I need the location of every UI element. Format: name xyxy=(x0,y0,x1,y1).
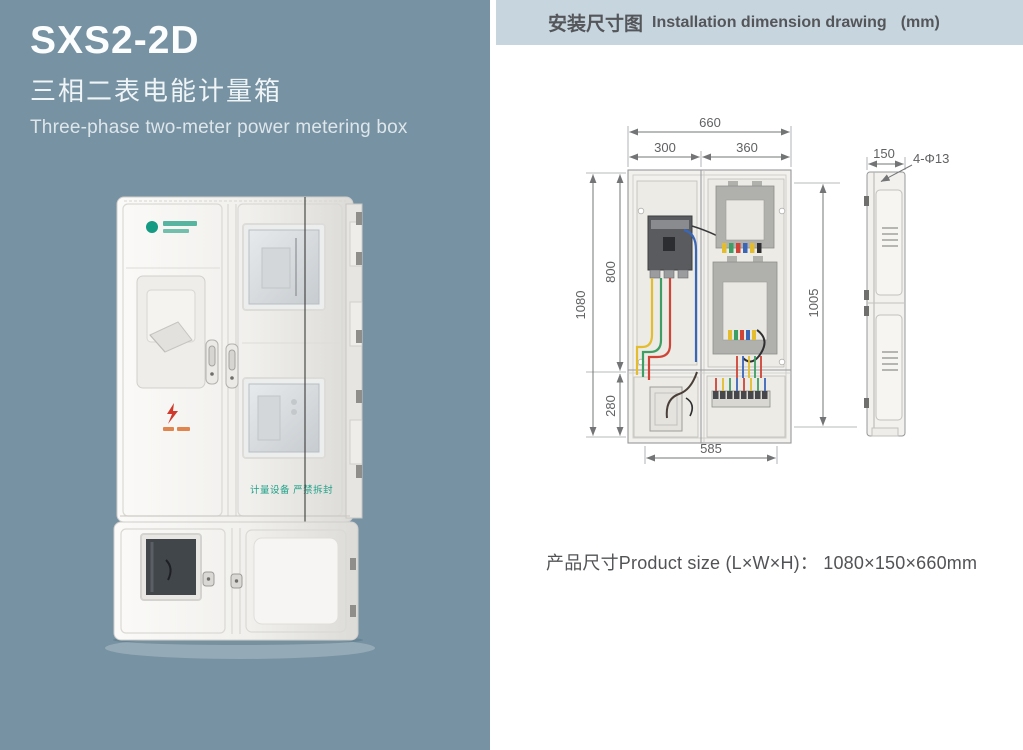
dim-right-width: 360 xyxy=(703,140,790,157)
product-size-label: 产品尺寸Product size (L×W×H)： xyxy=(546,553,818,573)
title-block: SXS2-2D 三相二表电能计量箱 Three-phase two-meter … xyxy=(30,20,408,139)
side-view xyxy=(864,172,905,436)
svg-text:360: 360 xyxy=(736,140,758,155)
model-name: SXS2-2D xyxy=(30,20,408,63)
svg-text:280: 280 xyxy=(603,395,618,417)
dim-depth: 150 xyxy=(867,146,905,170)
lock-handle xyxy=(226,344,238,388)
dim-left-width: 300 xyxy=(630,140,702,167)
lower-cabinet xyxy=(114,522,358,640)
svg-text:150: 150 xyxy=(873,146,895,161)
dim-total-height: 1080 xyxy=(573,173,626,437)
subtitle-cn: 三相二表电能计量箱 xyxy=(30,71,408,108)
product-size-value: 1080×150×660mm xyxy=(823,553,977,573)
meter-window-bottom xyxy=(141,534,201,600)
lock-handle xyxy=(203,572,214,586)
svg-text:660: 660 xyxy=(699,115,721,130)
door-handle xyxy=(137,276,205,388)
dim-bottom-width: 585 xyxy=(645,441,777,464)
header-bar: 安装尺寸图 Installation dimension drawing (mm… xyxy=(496,0,1023,45)
dim-lower-height: 280 xyxy=(603,374,620,436)
product-size-caption: 产品尺寸Product size (L×W×H)： 1080×150×660mm xyxy=(546,549,977,575)
svg-text:585: 585 xyxy=(700,441,722,456)
circuit-breaker xyxy=(648,216,692,278)
svg-text:1080: 1080 xyxy=(573,291,588,320)
svg-text:4-Φ13: 4-Φ13 xyxy=(913,151,949,166)
meter-mounting-plates xyxy=(713,181,777,378)
dim-total-width: 660 xyxy=(628,115,791,167)
seal-badge-text: 计量设备 严禁拆封 xyxy=(250,484,333,496)
dim-upper-height: 800 xyxy=(603,175,620,371)
left-panel: SXS2-2D 三相二表电能计量箱 Three-phase two-meter … xyxy=(0,0,490,750)
svg-text:300: 300 xyxy=(654,140,676,155)
svg-text:800: 800 xyxy=(603,261,618,283)
header-title-en: Installation dimension drawing xyxy=(652,14,887,32)
svg-text:1005: 1005 xyxy=(806,289,821,318)
upper-cabinet: 计量设备 严禁拆封 xyxy=(117,197,362,568)
lock-handle xyxy=(231,574,242,588)
lock-handle xyxy=(206,340,218,384)
meter-window-top xyxy=(243,224,325,310)
subtitle-en: Three-phase two-meter power metering box xyxy=(30,117,408,139)
header-unit: (mm) xyxy=(901,14,940,32)
meter-window-middle xyxy=(243,378,325,458)
header-title-cn: 安装尺寸图 xyxy=(548,9,643,36)
dimension-drawing: 660 300 360 1080 800 280 585 1005 xyxy=(555,100,1023,500)
product-photo: 计量设备 严禁拆封 xyxy=(95,180,395,680)
dim-right-height: 1005 xyxy=(794,183,857,427)
front-view xyxy=(628,170,791,443)
